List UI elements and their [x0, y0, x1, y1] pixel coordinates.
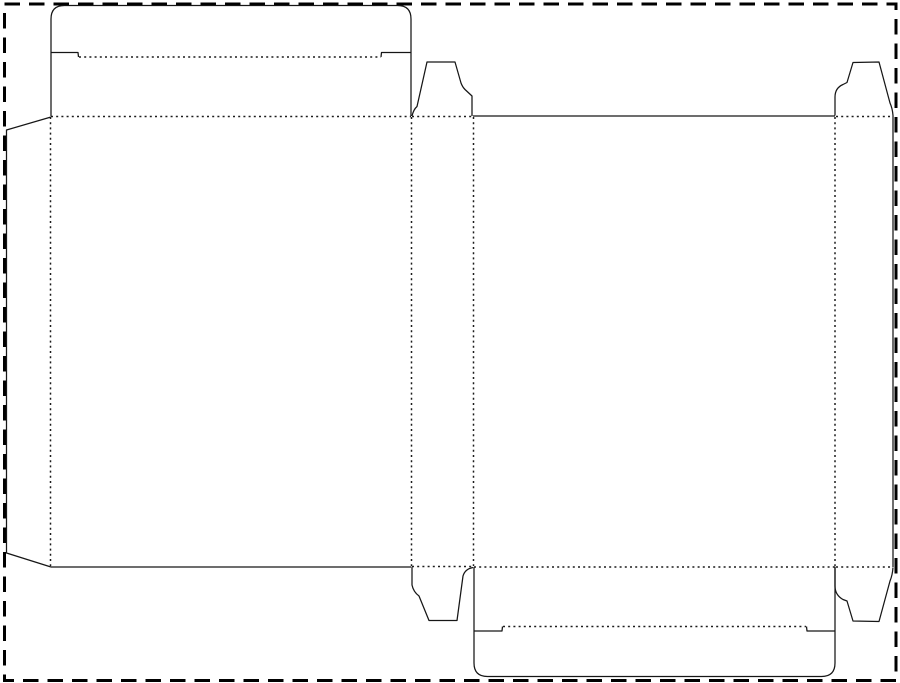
top-tuck-notch-right: [381, 53, 411, 58]
top-tuck-flap-outline: [51, 6, 411, 117]
glue-flap-outline: [7, 117, 52, 567]
bottom-tuck-flap-outline: [474, 567, 835, 677]
sheet-boundary: [5, 4, 897, 681]
dieline-sheet: [0, 0, 900, 683]
bottom-tuck-notch-left: [474, 627, 503, 632]
carton-dieline-drawing: [0, 0, 900, 683]
top-tuck-notch-left: [51, 53, 79, 58]
left-dust-flap-top: [412, 62, 472, 116]
right-dust-flap-bottom: [835, 568, 893, 622]
left-dust-flap-bottom: [412, 567, 473, 621]
right-dust-flap-top: [835, 62, 893, 116]
bottom-tuck-notch-right: [807, 627, 836, 632]
